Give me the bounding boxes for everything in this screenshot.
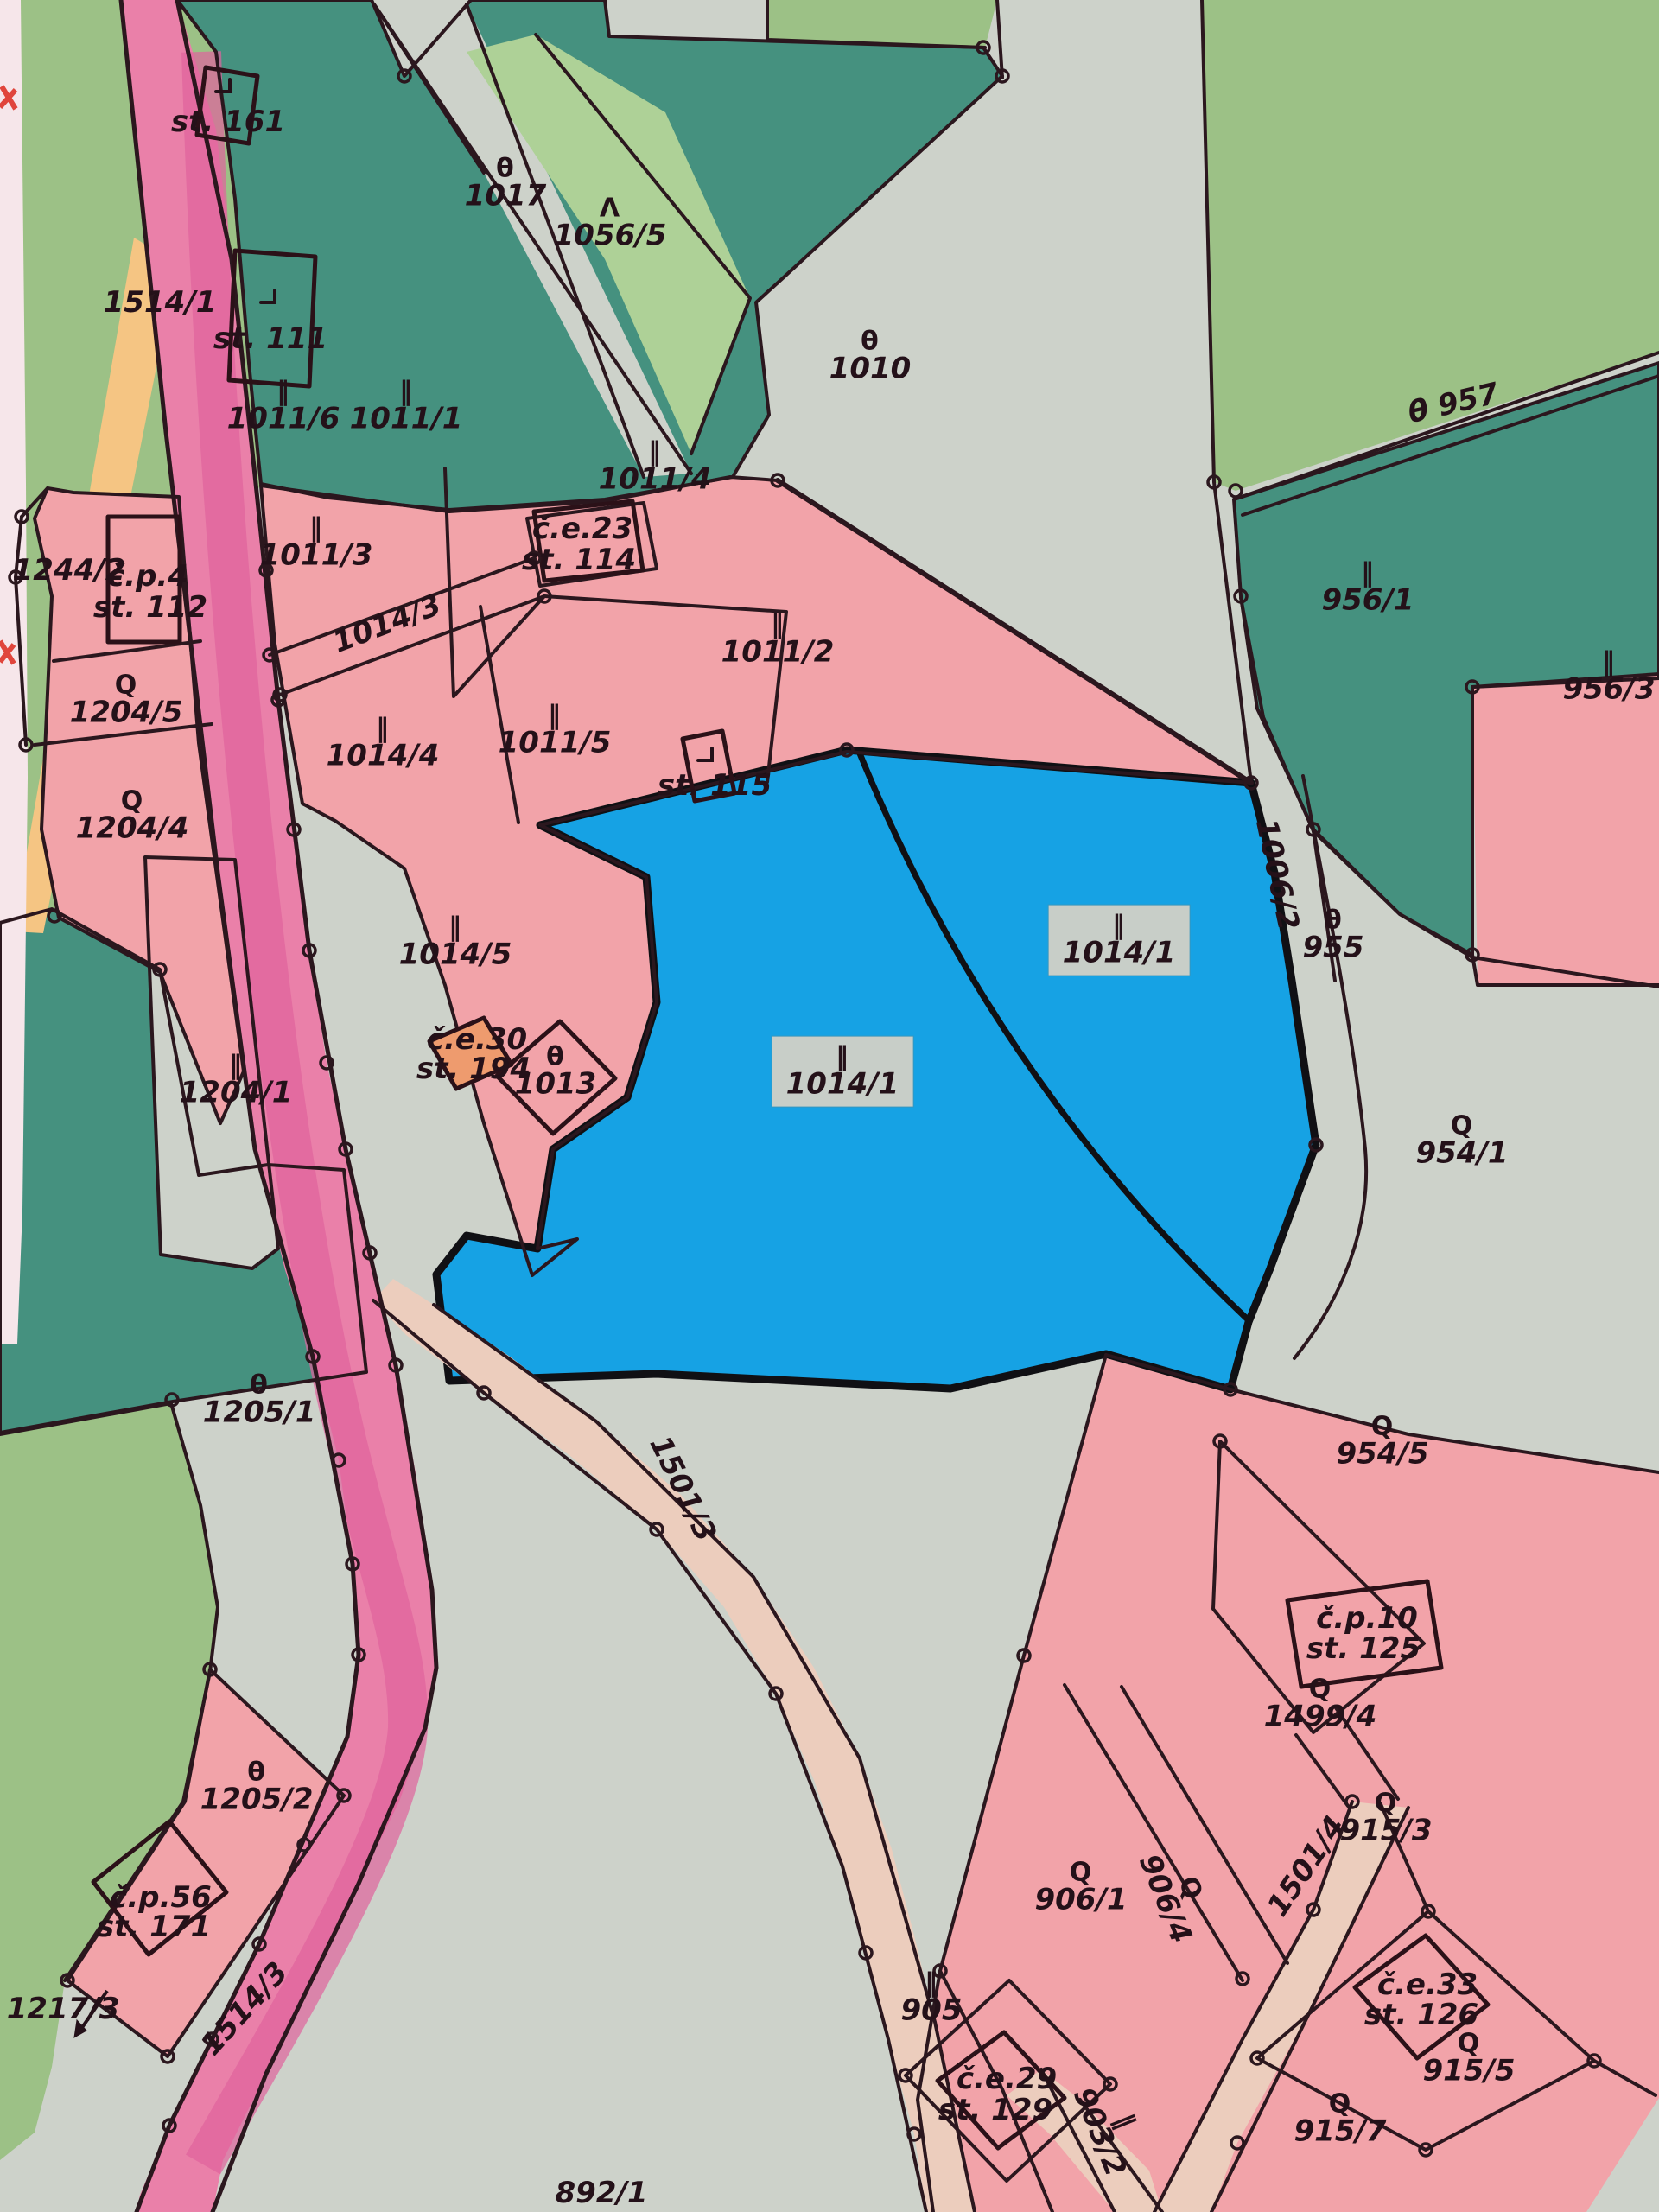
map-canvas [0,0,1659,2212]
region-gray-top-finger [605,0,767,40]
cadastral-map-photo: st. 161 θ1017 Λ1056/5 1514/1 st. 111 ‖10… [0,0,1659,2212]
region-pink-956-3 [1472,674,1659,985]
